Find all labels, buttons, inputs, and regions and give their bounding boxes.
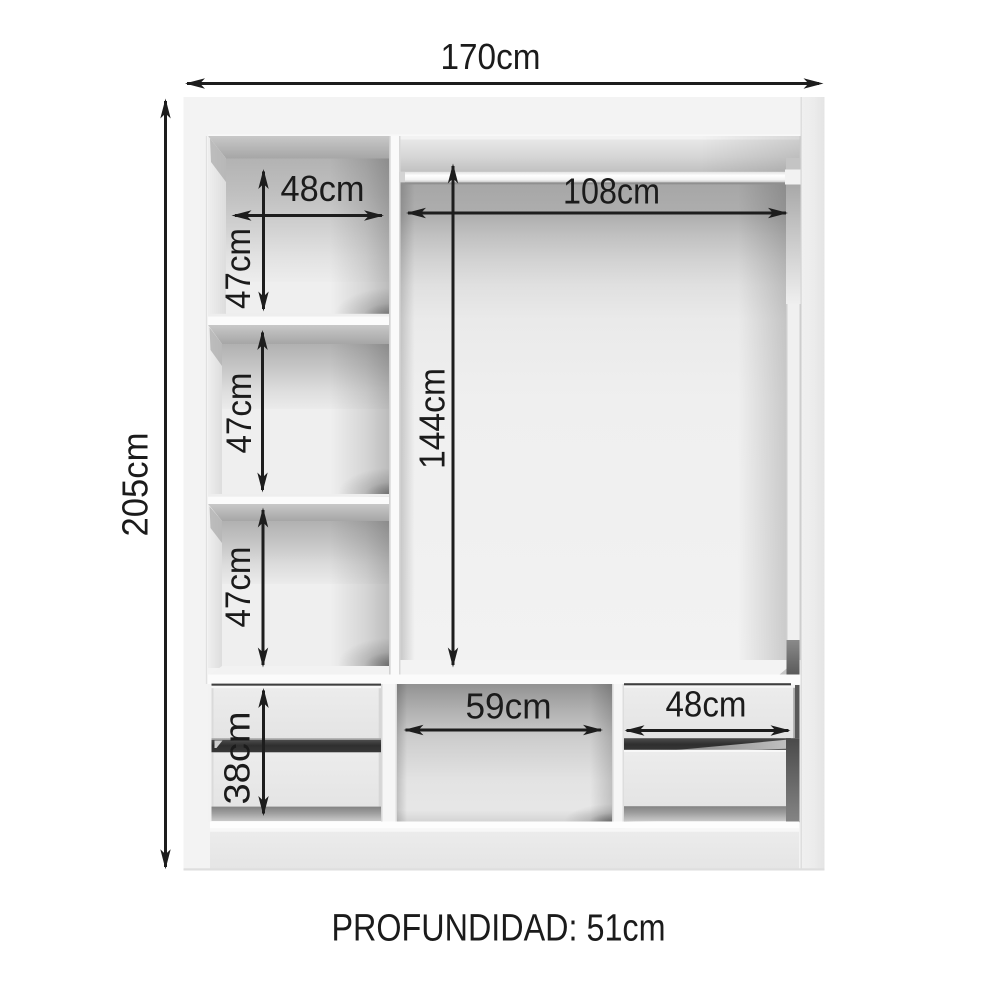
svg-text:144cm: 144cm: [412, 368, 453, 469]
svg-text:PROFUNDIDAD: 51cm: PROFUNDIDAD: 51cm: [332, 908, 666, 950]
svg-text:170cm: 170cm: [441, 36, 541, 77]
svg-text:47cm: 47cm: [219, 228, 258, 309]
svg-text:48cm: 48cm: [281, 168, 365, 209]
svg-text:48cm: 48cm: [666, 684, 747, 725]
svg-text:108cm: 108cm: [563, 171, 660, 212]
svg-text:38cm: 38cm: [217, 712, 258, 805]
svg-text:205cm: 205cm: [115, 433, 156, 537]
svg-text:59cm: 59cm: [466, 686, 552, 727]
svg-text:47cm: 47cm: [219, 547, 258, 628]
svg-text:47cm: 47cm: [220, 373, 259, 454]
